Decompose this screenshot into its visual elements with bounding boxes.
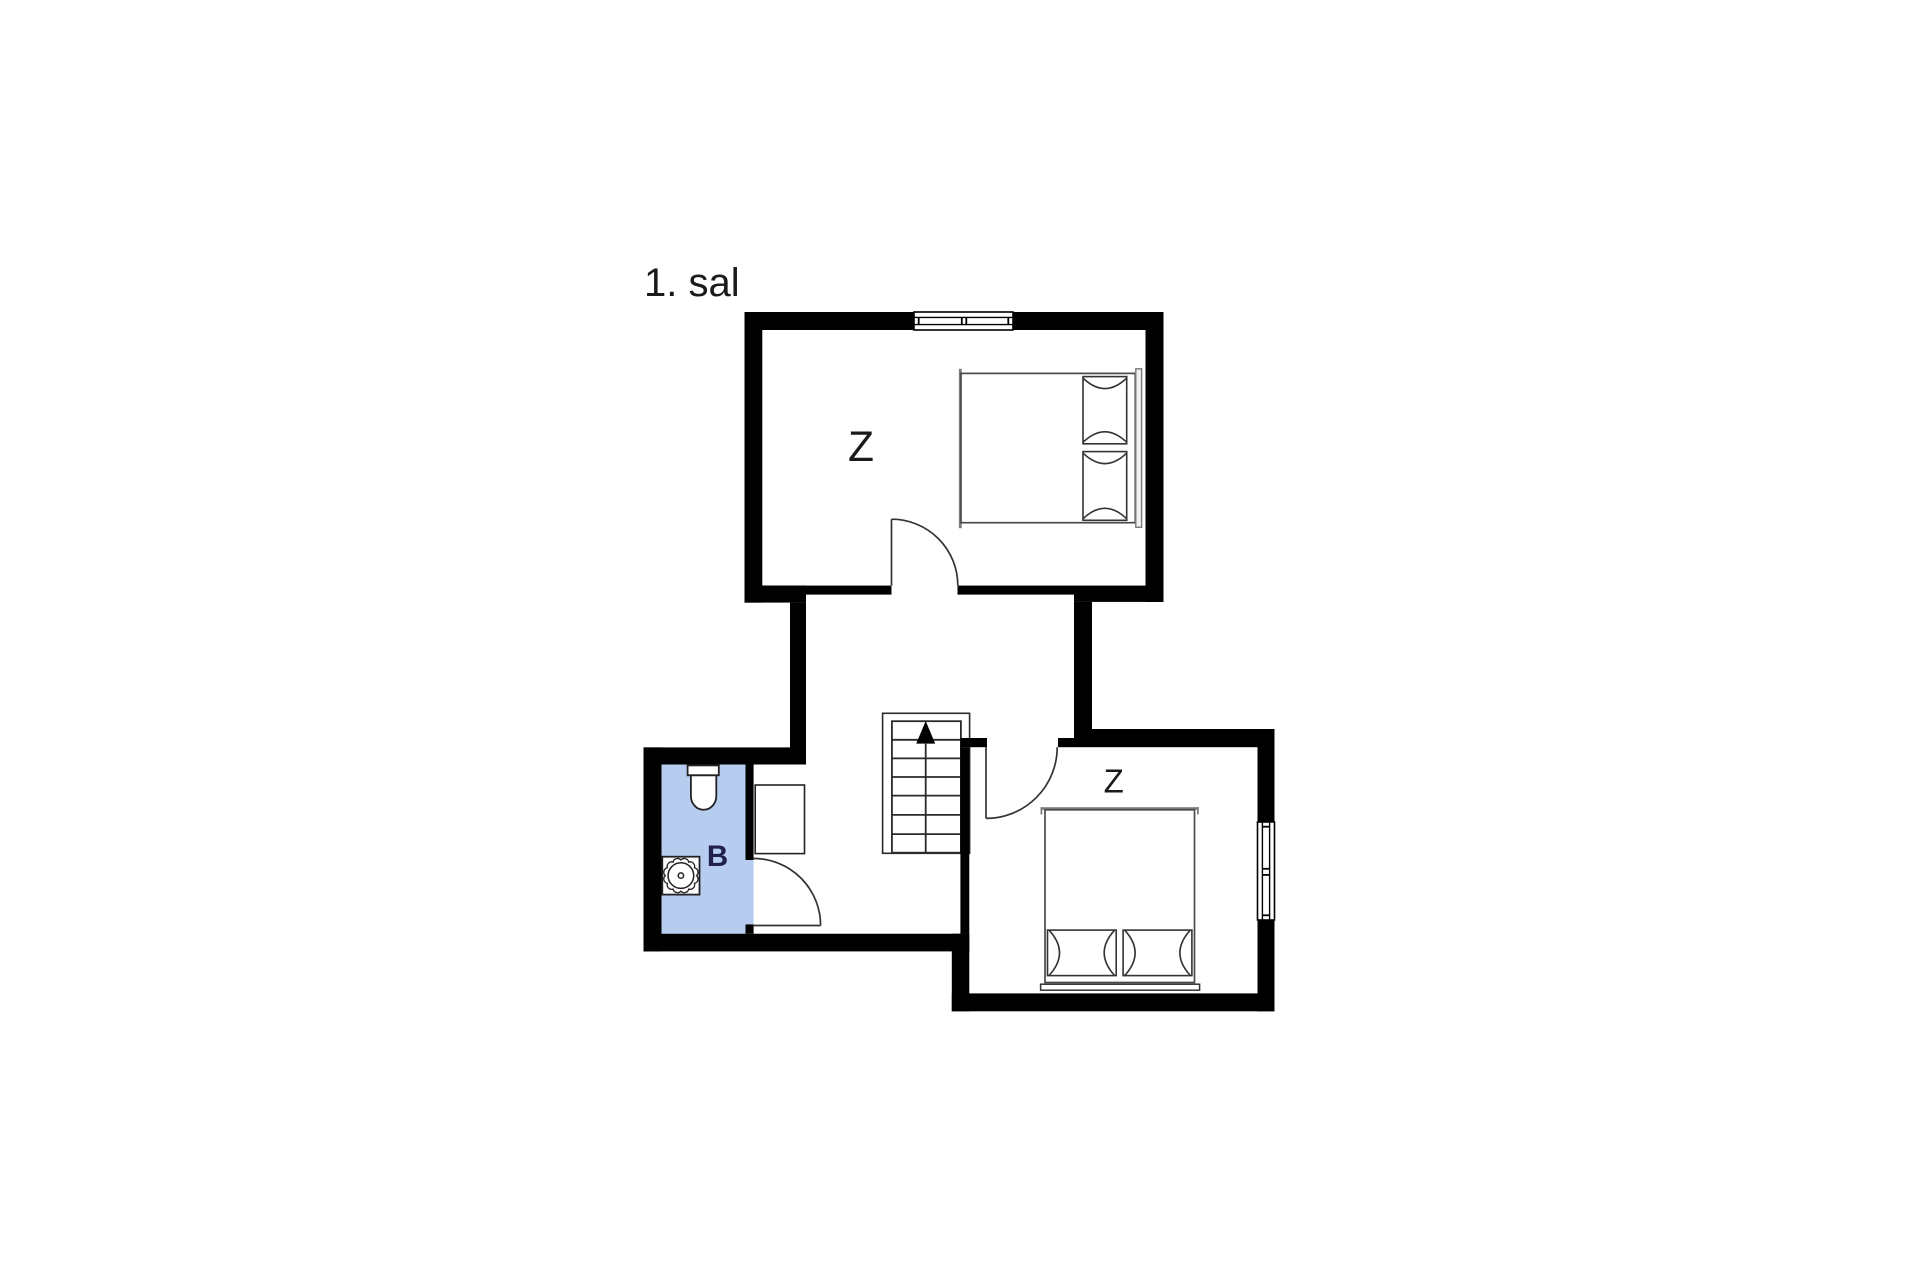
svg-text:Z: Z: [848, 424, 874, 471]
svg-text:1. sal: 1. sal: [644, 261, 740, 305]
svg-text:B: B: [707, 840, 728, 873]
svg-text:Z: Z: [1104, 762, 1124, 799]
